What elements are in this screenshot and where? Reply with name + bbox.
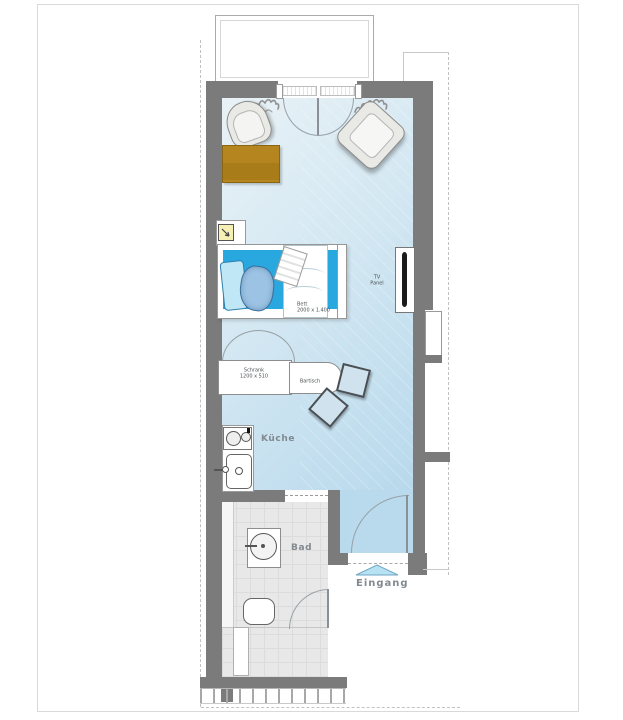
- cooktop: [223, 427, 252, 450]
- sink-faucet-knob: [222, 466, 229, 473]
- bath-door-leaf: [327, 589, 329, 628]
- coffee-table: [222, 145, 280, 183]
- entrance-arrow-icon: [354, 563, 400, 577]
- bed-footboard: [337, 244, 347, 319]
- wardrobe-dims: 1200 x 510: [232, 373, 277, 379]
- burner-large: [226, 431, 241, 446]
- balcony-door-sill-left: [282, 86, 317, 96]
- tv-panel: [395, 247, 415, 313]
- washbasin: [250, 533, 277, 560]
- kitchen-label: Küche: [261, 434, 295, 444]
- balcony-door-leaf: [317, 98, 319, 135]
- bathroom-niche: [233, 627, 249, 676]
- balcony-inner-line: [220, 20, 369, 78]
- tv-screen: [402, 252, 407, 307]
- burner-small: [241, 432, 251, 442]
- balcony: [215, 15, 374, 83]
- entry-side-line: [423, 569, 448, 570]
- basin-faucet: [245, 545, 257, 547]
- wall-lamp-icon: [218, 224, 234, 241]
- wardrobe-label: Schrank 1200 x 510: [232, 367, 277, 379]
- railing: [200, 688, 346, 704]
- wall-entry-left-pier: [328, 553, 348, 565]
- bathroom-left-strip: [222, 502, 234, 627]
- wall-right-upper: [413, 98, 433, 310]
- bath-passage-dashes: [285, 495, 328, 496]
- wall-bath-top-right: [328, 490, 340, 502]
- wall-entry-right-pier: [408, 553, 427, 575]
- neighbor-outline-v: [403, 52, 404, 81]
- bed-label: Bett 2000 x 1.400: [297, 301, 330, 313]
- boundary-line-bottom: [201, 707, 460, 708]
- wall-right-niche: [425, 311, 442, 357]
- bed-dims: 2000 x 1.400: [297, 307, 330, 313]
- wall-bath-bottom: [200, 677, 347, 688]
- entry-door-leaf: [406, 495, 408, 553]
- sink-drain: [235, 467, 243, 475]
- wall-right-stub1: [423, 355, 442, 363]
- floor-plan-canvas: Bett 2000 x 1.400 TV Panel Schrank 1200 …: [0, 0, 623, 720]
- toilet: [243, 598, 275, 625]
- wall-right-lower: [413, 310, 425, 553]
- tv-label: TV Panel: [368, 274, 387, 286]
- kitchen-sink: [226, 454, 252, 489]
- boundary-line-right: [448, 52, 449, 575]
- bath-label: Bad: [291, 543, 312, 553]
- balcony-door-sill-right: [320, 86, 355, 96]
- boundary-line-left: [200, 40, 201, 707]
- entrance-label: Eingang: [356, 578, 409, 589]
- bar-table-label: Bartisch: [296, 378, 323, 384]
- wall-right-stub2: [423, 452, 450, 462]
- wall-bath-right: [328, 502, 340, 553]
- neighbor-outline-h: [403, 52, 448, 53]
